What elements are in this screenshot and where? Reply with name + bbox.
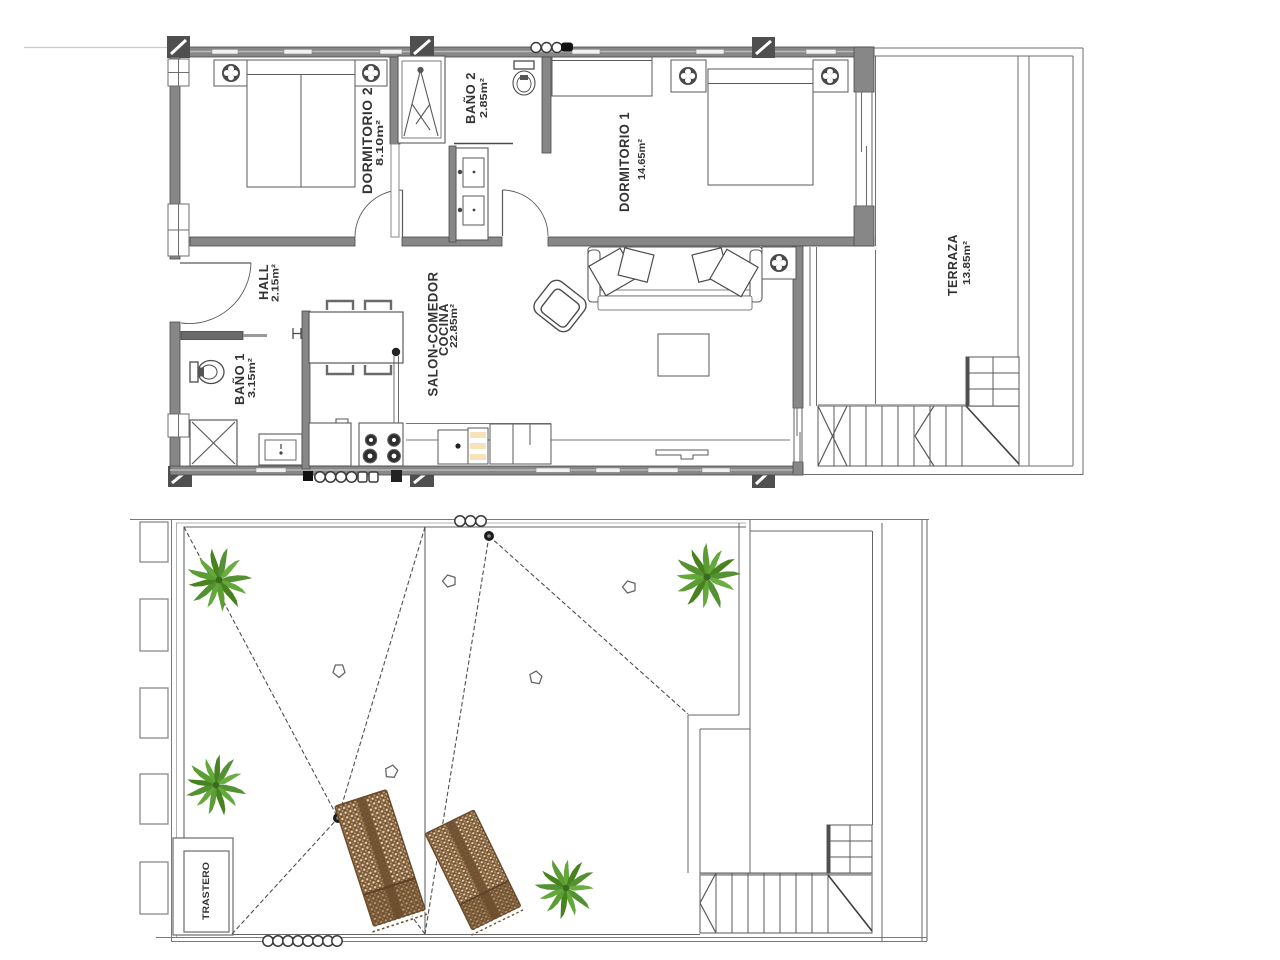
svg-text:22.85m²: 22.85m² [448, 303, 460, 348]
svg-text:TERRAZA: TERRAZA [945, 234, 960, 296]
svg-text:TRASTERO: TRASTERO [201, 862, 212, 920]
svg-text:BAÑO 1: BAÑO 1 [232, 353, 247, 405]
svg-text:DORMITORIO 2: DORMITORIO 2 [359, 87, 375, 194]
svg-text:2.15m²: 2.15m² [271, 263, 282, 302]
svg-text:BAÑO 2: BAÑO 2 [463, 72, 478, 124]
svg-text:HALL: HALL [256, 264, 271, 300]
svg-text:13.85m²: 13.85m² [961, 240, 973, 285]
svg-text:2.85m²: 2.85m² [479, 77, 490, 118]
svg-text:14.65m²: 14.65m² [637, 138, 648, 180]
svg-text:8.10m²: 8.10m² [374, 119, 386, 166]
svg-text:DORMITORIO 1: DORMITORIO 1 [616, 112, 632, 212]
svg-text:3.15m²: 3.15m² [247, 357, 258, 398]
